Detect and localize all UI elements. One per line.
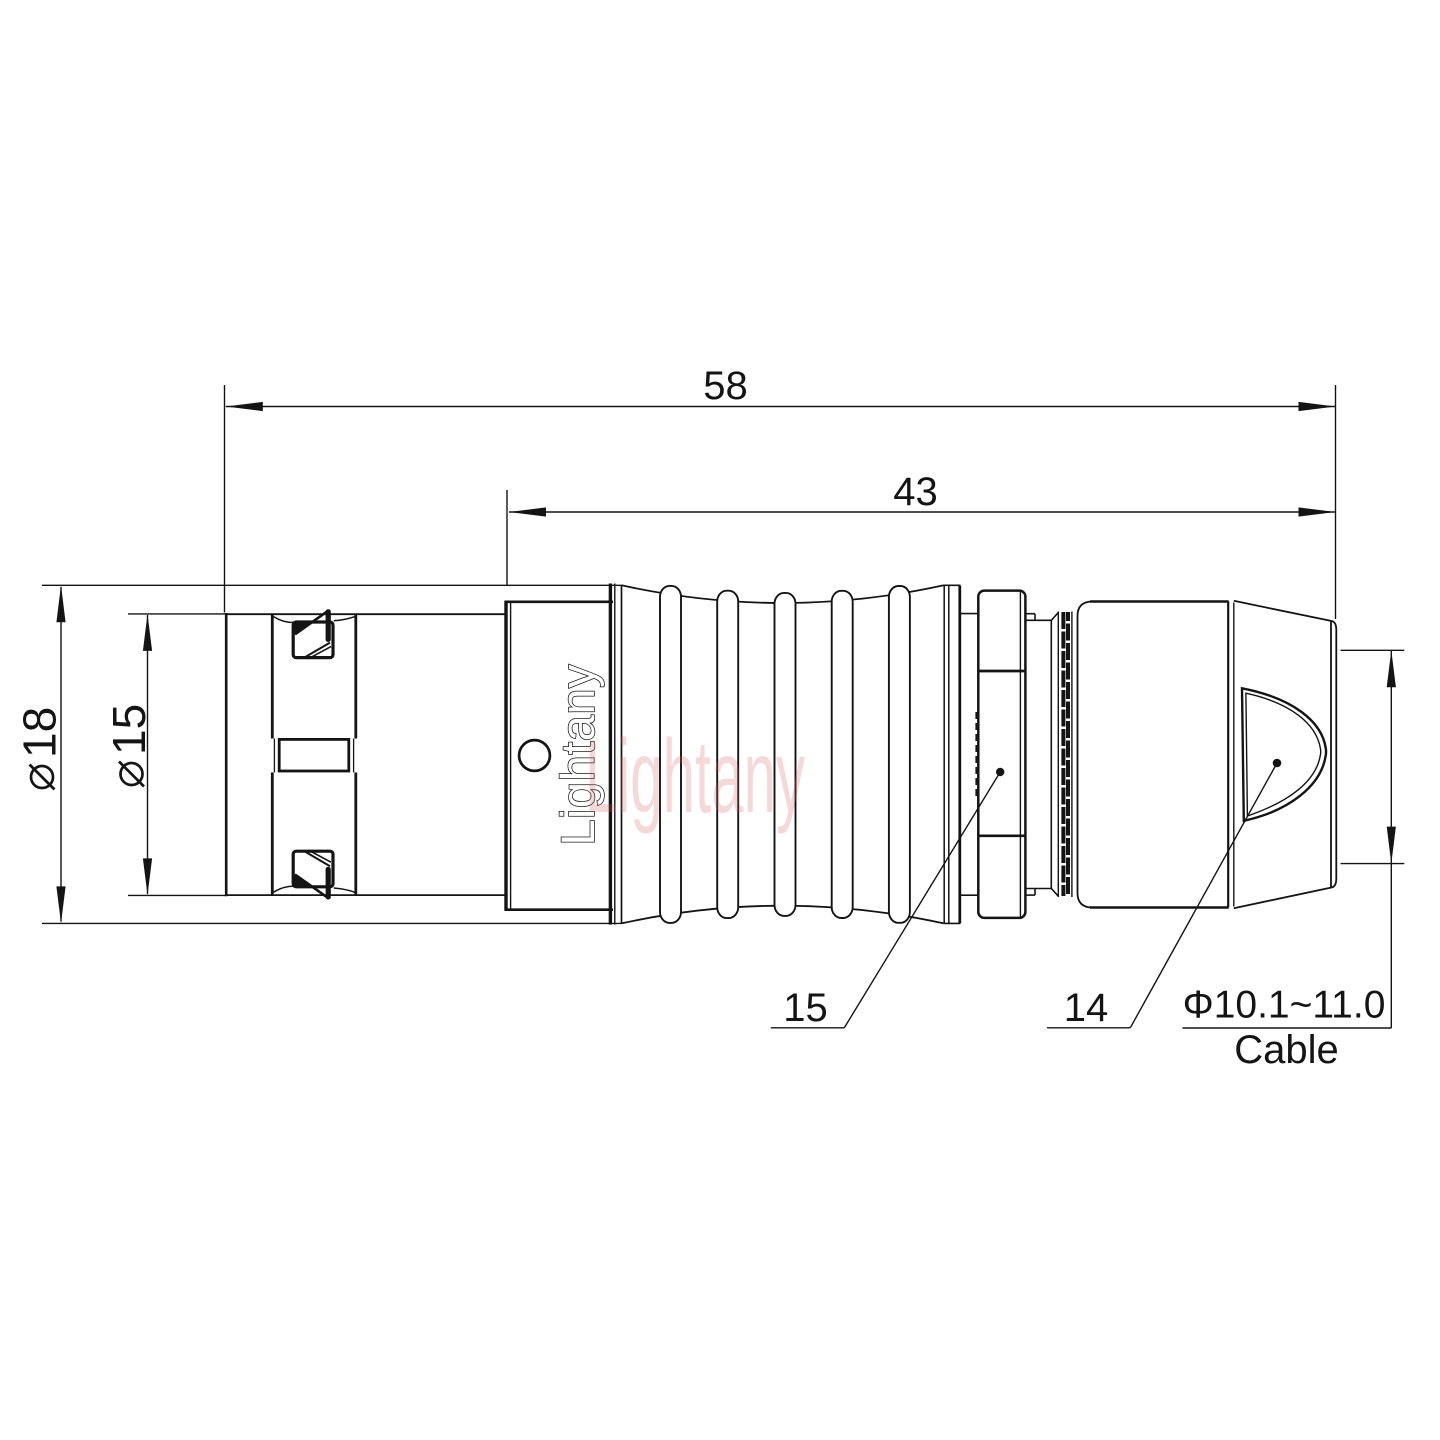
svg-text:18: 18	[14, 707, 66, 758]
svg-text:14: 14	[1064, 986, 1109, 1030]
svg-text:Φ10.1~11.0: Φ10.1~11.0	[1183, 984, 1386, 1027]
svg-text:15: 15	[103, 704, 155, 755]
svg-text:Lightany: Lightany	[585, 718, 805, 834]
svg-text:58: 58	[703, 364, 748, 408]
svg-text:15: 15	[783, 986, 828, 1030]
svg-text:43: 43	[893, 470, 938, 514]
svg-text:Cable: Cable	[1234, 1028, 1339, 1072]
